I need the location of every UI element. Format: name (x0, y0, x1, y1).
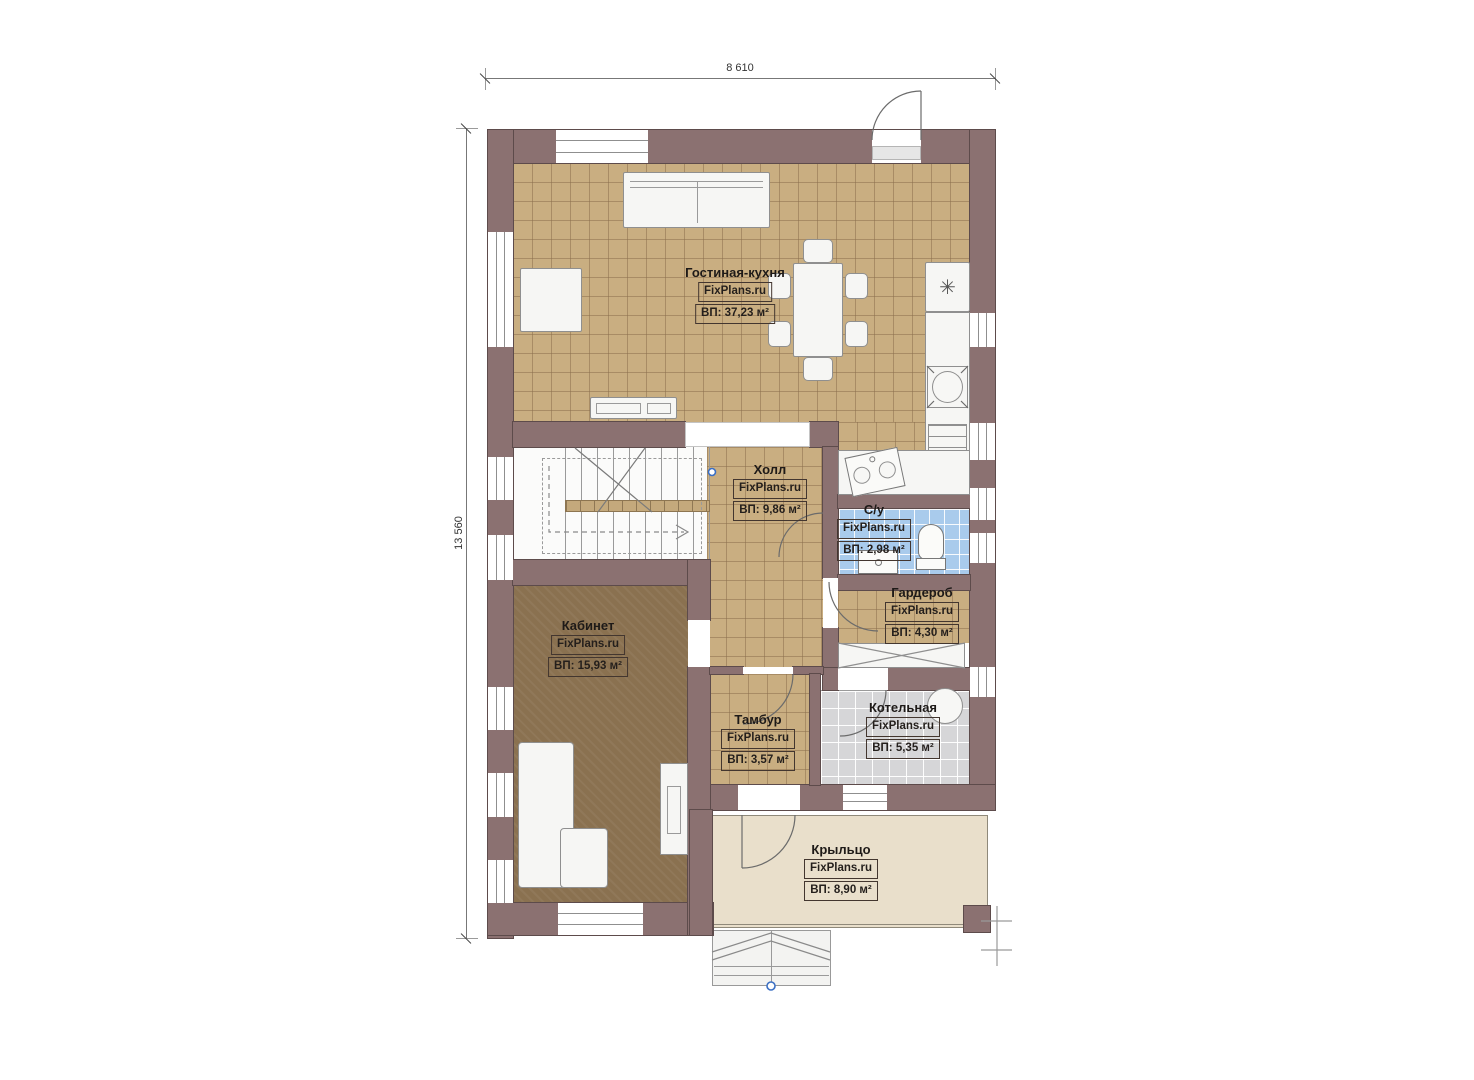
dimension-line-top (485, 78, 995, 79)
room-name: Тамбур (734, 712, 781, 727)
room-label-bathroom: С/у FixPlans.ru ВП: 2,98 м² (837, 502, 911, 561)
marker-dot-stairs (767, 982, 775, 990)
room-area: ВП: 4,30 м² (885, 624, 959, 644)
stair-break-lines (575, 448, 652, 512)
entry-door-arc (872, 91, 921, 140)
room-label-boiler-room: Котельная FixPlans.ru ВП: 5,35 м² (866, 700, 940, 759)
annotation-overlay (0, 0, 1474, 1080)
room-name: Крыльцо (811, 842, 870, 857)
room-label-wardrobe: Гардероб FixPlans.ru ВП: 4,30 м² (885, 585, 959, 644)
room-watermark: FixPlans.ru (804, 859, 878, 879)
room-name: Гардероб (891, 585, 952, 600)
room-area: ВП: 2,98 м² (837, 541, 911, 561)
room-watermark: FixPlans.ru (866, 717, 940, 737)
room-label-porch: Крыльцо FixPlans.ru ВП: 8,90 м² (804, 842, 878, 901)
room-watermark: FixPlans.ru (733, 479, 807, 499)
room-watermark: FixPlans.ru (698, 282, 772, 302)
floor-plan-canvas: ✳ (0, 0, 1474, 1080)
room-label-office: Кабинет FixPlans.ru ВП: 15,93 м² (548, 618, 628, 677)
room-watermark: FixPlans.ru (837, 519, 911, 539)
room-area: ВП: 15,93 м² (548, 657, 628, 677)
room-area: ВП: 5,35 м² (866, 739, 940, 759)
exterior-stair-chevron (712, 933, 830, 952)
closet-cross-lines (838, 643, 965, 668)
room-area: ВП: 8,90 м² (804, 881, 878, 901)
room-label-living-kitchen: Гостиная-кухня FixPlans.ru ВП: 37,23 м² (685, 265, 785, 324)
room-name: Котельная (869, 700, 937, 715)
room-area: ВП: 37,23 м² (695, 304, 775, 324)
dimension-width-label: 8 610 (726, 62, 754, 74)
room-name: С/у (864, 502, 884, 517)
room-area: ВП: 3,57 м² (721, 751, 795, 771)
room-label-vestibule: Тамбур FixPlans.ru ВП: 3,57 м² (721, 712, 795, 771)
marker-dot-hall (709, 469, 716, 476)
room-watermark: FixPlans.ru (551, 635, 625, 655)
sink-corner-marks (927, 366, 968, 408)
porch-door-arc (742, 815, 795, 868)
room-watermark: FixPlans.ru (721, 729, 795, 749)
room-name: Холл (754, 462, 787, 477)
room-watermark: FixPlans.ru (885, 602, 959, 622)
dimension-line-left (466, 128, 467, 938)
wardrobe-door-arc (829, 582, 878, 631)
exterior-stair-chevron (712, 941, 830, 960)
room-name: Кабинет (562, 618, 615, 633)
room-name: Гостиная-кухня (685, 265, 785, 280)
dimension-height-label: 13 560 (453, 516, 465, 550)
room-label-hall: Холл FixPlans.ru ВП: 9,86 м² (733, 462, 807, 521)
stair-walk-line (549, 466, 684, 532)
axis-cross-marks (981, 906, 1012, 966)
room-area: ВП: 9,86 м² (733, 501, 807, 521)
